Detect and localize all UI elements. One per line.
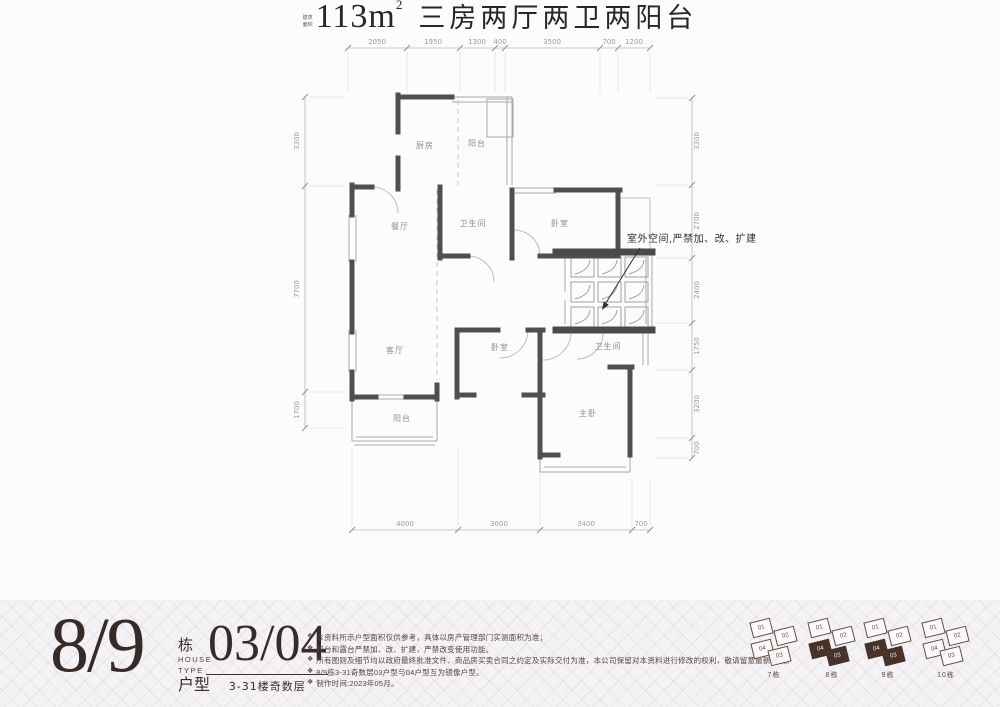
dimension-label: 700 (693, 441, 701, 454)
dimension-label: 1700 (293, 401, 301, 419)
note-text: 制作时间:2023年05月。 (316, 679, 398, 688)
note-bullet-icon: ❖ (307, 679, 313, 687)
note-bullet-icon: ❖ (307, 633, 313, 641)
note-line: ❖ 8/9栋3-31奇数层03户型与04户型互为镜像户型。 (307, 668, 737, 677)
block-number: 8/9 (50, 602, 144, 688)
room-label-balcony-top: 阳台 (468, 138, 486, 148)
building-locator: 01 02 04 03 7栋 (748, 618, 800, 680)
area-value: 113m (316, 0, 396, 34)
room-label-bath1: 卫生间 (460, 218, 487, 228)
unit-cell: 02 (887, 626, 911, 647)
unit-cell: 01 (863, 618, 887, 639)
room-label-living: 客厅 (386, 345, 404, 355)
unit-cell: 03 (825, 646, 849, 667)
dimension-label: 700 (602, 38, 615, 46)
note-line: ❖ 阳台和露台严禁加、改、扩建，严禁改变使用功能。 (307, 645, 737, 654)
dimension-label: 3400 (577, 520, 595, 528)
area-title: 建筑面积 113m 2 三房两厅两卫两阳台 (0, 0, 1000, 34)
dimension-ticks (302, 45, 695, 533)
unit-cell: 01 (921, 618, 945, 639)
unit-cell: 03 (939, 646, 963, 667)
building-locators: 01 02 04 03 7栋 01 02 04 03 8栋 01 02 04 0… (748, 618, 978, 688)
note-line: ❖ 制作时间:2023年05月。 (307, 679, 737, 688)
dimension-label: 4000 (396, 520, 414, 528)
unit-cell: 02 (945, 626, 969, 647)
room-label-bath2: 卫生间 (595, 341, 622, 351)
unit-cell: 03 (881, 646, 905, 667)
door-arcs (372, 187, 603, 360)
room-label-kitchen: 厨房 (416, 140, 434, 150)
note-text: 所有图则及细节均以政府最终批准文件、商品房买卖合同之约定及实际交付为准，本公司保… (316, 656, 793, 665)
building-label: 10栋 (920, 670, 972, 680)
dimension-label: 400 (493, 38, 506, 46)
room-label-balcony-bottom: 阳台 (393, 413, 411, 423)
layout-description: 三房两厅两卫两阳台 (418, 4, 697, 34)
dimension-label: 7700 (293, 280, 301, 298)
note-text: 本资料所示户型面积仅供参考，具体以房产管理部门实测面积为准； (316, 633, 547, 642)
building-label: 8栋 (806, 670, 858, 680)
note-text: 阳台和露台严禁加、改、扩建，严禁改变使用功能。 (316, 645, 493, 654)
area-prefix-label: 建筑面积 (303, 15, 315, 28)
building-label: 7栋 (748, 670, 800, 680)
dimension-label: 700 (634, 520, 647, 528)
building-locator: 01 02 04 03 10栋 (920, 618, 972, 680)
walls (352, 95, 632, 457)
room-label-dining: 餐厅 (391, 222, 409, 231)
area-superscript: 2 (396, 0, 403, 11)
building-label: 9栋 (862, 670, 914, 680)
unit-cell: 03 (767, 646, 791, 667)
dimension-label: 3000 (490, 520, 508, 528)
note-line: ❖ 所有图则及细节均以政府最终批准文件、商品房买卖合同之约定及实际交付为准，本公… (307, 656, 737, 665)
room-label-bedroom2: 卧室 (491, 342, 509, 352)
dimension-label: 1750 (693, 337, 701, 355)
unit-cell: 01 (807, 618, 831, 639)
outdoor-hatch-grid (571, 257, 648, 327)
note-line: ❖ 本资料所示户型面积仅供参考，具体以房产管理部门实测面积为准； (307, 633, 737, 642)
dimension-label: 3300 (293, 132, 301, 150)
dimension-label: 1950 (424, 38, 442, 46)
unit-cell: 02 (773, 626, 797, 647)
disclaimer-notes: ❖ 本资料所示户型面积仅供参考，具体以房产管理部门实测面积为准； ❖ 阳台和露台… (307, 633, 737, 691)
note-text: 8/9栋3-31奇数层03户型与04户型互为镜像户型。 (316, 668, 484, 677)
dimension-lines (305, 48, 692, 530)
unit-cell: 02 (831, 626, 855, 647)
dimension-label: 3500 (543, 38, 561, 46)
footer-strip: 8/9 栋 HOUSE TYPE 户型 03/04 3-31楼奇数层 ❖ 本资料… (0, 600, 1000, 707)
dimension-label: 1300 (468, 38, 486, 46)
note-bullet-icon: ❖ (307, 668, 313, 676)
dimension-label: 1200 (625, 38, 643, 46)
dimension-label: 2400 (693, 281, 701, 299)
building-locator: 01 02 04 03 9栋 (862, 618, 914, 680)
unit-cell: 01 (749, 618, 773, 639)
dimension-label: 3200 (693, 395, 701, 413)
dimension-label: 2050 (368, 38, 386, 46)
floor-plan: 2050 1950 1300 400 3500 700 1200 3300 77… (0, 0, 1000, 600)
note-bullet-icon: ❖ (307, 656, 313, 664)
floorplan-page: 2050 1950 1300 400 3500 700 1200 3300 77… (0, 0, 1000, 707)
dimension-label: 2700 (693, 212, 701, 230)
room-label-master: 主卧 (579, 408, 597, 418)
dimension-label: 3300 (693, 132, 701, 150)
building-locator: 01 02 04 03 8栋 (806, 618, 858, 680)
note-bullet-icon: ❖ (307, 645, 313, 653)
room-label-bedroom1: 卧室 (551, 218, 569, 228)
outdoor-annotation: 室外空间,严禁加、改、扩建 (627, 232, 757, 245)
walls-outdoor (556, 252, 652, 330)
